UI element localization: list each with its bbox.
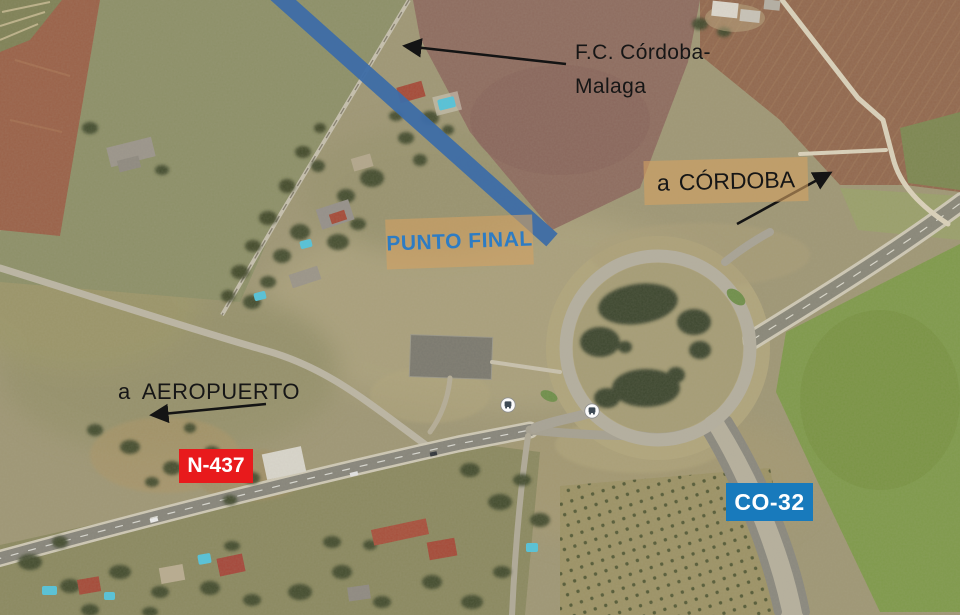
railway-label-line2: Malaga [575, 70, 711, 104]
co32-badge: CO-32 [726, 483, 813, 521]
aeropuerto-prefix: a [118, 379, 131, 405]
aeropuerto-label: a AEROPUERTO [118, 379, 300, 405]
n437-label: N-437 [187, 454, 244, 478]
railway-label: F.C. Córdoba- Malaga [575, 36, 711, 104]
n437-badge: N-437 [179, 449, 253, 483]
bus-stop-icon [501, 398, 515, 412]
cordoba-highlight: a CÓRDOBA [643, 157, 808, 205]
photo-grain [0, 0, 960, 615]
cordoba-prefix: a [657, 169, 670, 196]
punto-final-highlight: PUNTO FINAL [385, 214, 534, 269]
bus-stop-icon [585, 404, 599, 418]
punto-final-label: PUNTO FINAL [386, 227, 533, 256]
cordoba-label: CÓRDOBA [678, 166, 795, 196]
co32-label: CO-32 [734, 489, 804, 516]
aerial-photo [0, 0, 960, 615]
annotated-aerial-map: F.C. Córdoba- Malaga a CÓRDOBA PUNTO FIN… [0, 0, 960, 615]
aeropuerto-text: AEROPUERTO [142, 379, 300, 405]
railway-label-line1: F.C. Córdoba- [575, 36, 711, 70]
